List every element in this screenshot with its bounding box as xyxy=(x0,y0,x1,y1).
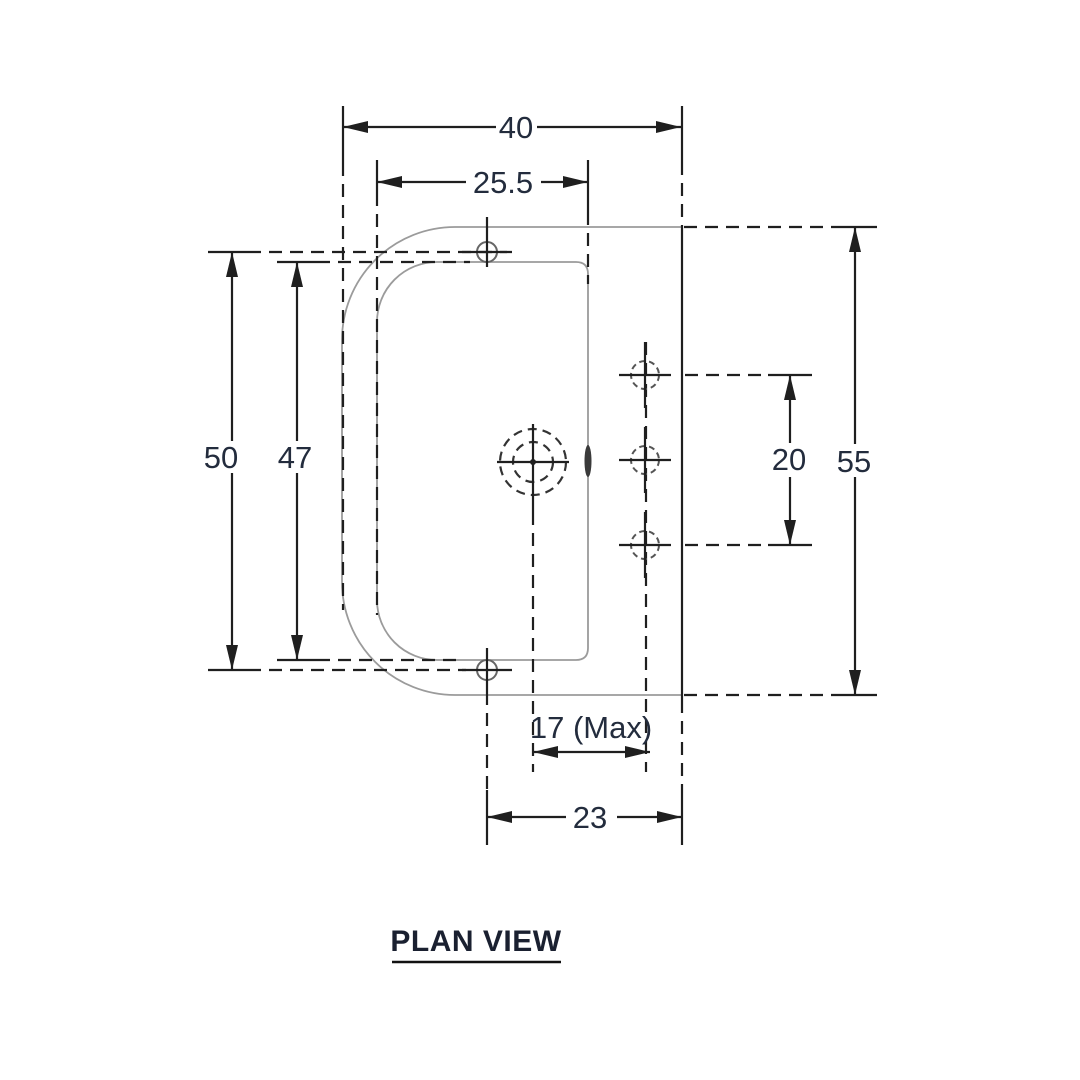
arrow-down-icon xyxy=(784,520,796,545)
view-title-label: PLAN VIEW xyxy=(390,925,561,958)
dim-label-outer-height: 50 xyxy=(204,440,238,475)
side-hole-bottom xyxy=(619,512,671,578)
center-dot xyxy=(530,459,536,465)
dim-label-overall-height: 55 xyxy=(837,444,871,479)
arrow-left-icon xyxy=(487,811,512,823)
arrow-up-icon xyxy=(291,262,303,287)
dim-hole-pitch: 20 xyxy=(772,375,806,545)
top-mount-hole xyxy=(462,217,512,267)
dim-outer-height-left: 50 xyxy=(204,252,238,670)
arrow-left-icon xyxy=(377,176,402,188)
plan-view-drawing: 40 25.5 50 47 55 20 xyxy=(0,0,1080,1080)
arrow-up-icon xyxy=(784,375,796,400)
arrow-left-icon xyxy=(533,746,558,758)
dim-label-hole-pitch: 20 xyxy=(772,442,806,477)
view-title: PLAN VIEW xyxy=(390,925,561,962)
dim-overall-width: 40 xyxy=(343,110,681,145)
arrow-down-icon xyxy=(291,635,303,660)
dim-overall-height: 55 xyxy=(837,227,871,695)
dim-inner-height: 47 xyxy=(278,262,312,660)
arrow-right-icon xyxy=(656,121,681,133)
arrow-down-icon xyxy=(849,670,861,695)
dim-max-depth: 17 (Max) xyxy=(530,710,652,758)
dim-label-plate-offset: 23 xyxy=(573,800,607,835)
dim-inner-width: 25.5 xyxy=(377,165,588,200)
center-spindle-hole xyxy=(497,424,569,512)
dim-label-inner-height: 47 xyxy=(278,440,312,475)
side-hole-middle xyxy=(619,427,671,493)
dim-label-inner-width: 25.5 xyxy=(473,165,533,200)
dim-plate-offset: 23 xyxy=(487,800,682,835)
edge-slot-mark xyxy=(585,445,592,477)
arrow-down-icon xyxy=(226,645,238,670)
bottom-mount-hole xyxy=(462,648,512,692)
arrow-up-icon xyxy=(226,252,238,277)
side-hole-top xyxy=(619,342,671,408)
arrow-right-icon xyxy=(563,176,588,188)
arrow-right-icon xyxy=(657,811,682,823)
arrow-left-icon xyxy=(343,121,368,133)
dim-label-max-depth: 17 (Max) xyxy=(530,710,652,745)
arrow-up-icon xyxy=(849,227,861,252)
dim-label-overall-width: 40 xyxy=(499,110,533,145)
